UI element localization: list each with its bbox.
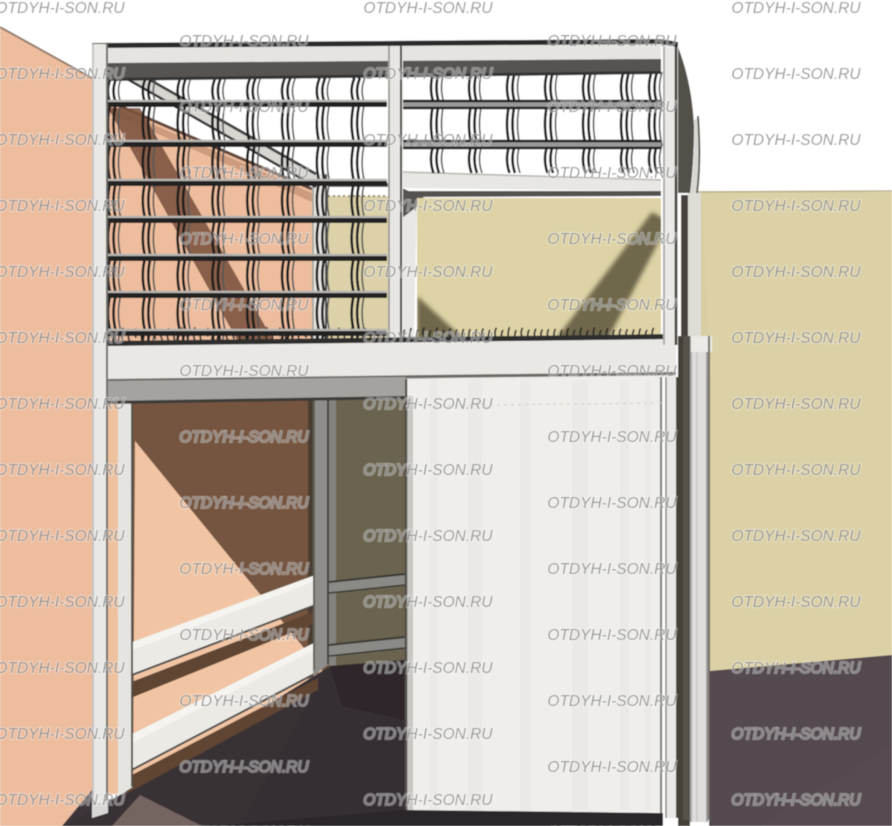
svg-text:OTDYH-I-SON.RU: OTDYH-I-SON.RU: [731, 660, 861, 677]
svg-text:OTDYH-I-SON.RU: OTDYH-I-SON.RU: [363, 198, 493, 215]
svg-text:OTDYH-I-SON.RU: OTDYH-I-SON.RU: [731, 198, 861, 215]
svg-text:OTDYH-I-SON.RU: OTDYH-I-SON.RU: [0, 132, 125, 149]
svg-text:OTDYH-I-SON.RU: OTDYH-I-SON.RU: [363, 264, 493, 281]
svg-text:OTDYH-I-SON.RU: OTDYH-I-SON.RU: [363, 330, 493, 347]
svg-text:OTDYH-I-SON.RU: OTDYH-I-SON.RU: [547, 297, 677, 314]
svg-text:OTDYH-I-SON.RU: OTDYH-I-SON.RU: [0, 660, 125, 677]
svg-text:OTDYH-I-SON.RU: OTDYH-I-SON.RU: [547, 627, 677, 644]
svg-text:OTDYH-I-SON.RU: OTDYH-I-SON.RU: [363, 462, 493, 479]
svg-text:OTDYH-I-SON.RU: OTDYH-I-SON.RU: [547, 693, 677, 710]
svg-text:OTDYH-I-SON.RU: OTDYH-I-SON.RU: [363, 132, 493, 149]
svg-text:OTDYH-I-SON.RU: OTDYH-I-SON.RU: [731, 792, 861, 809]
svg-text:OTDYH-I-SON.RU: OTDYH-I-SON.RU: [179, 231, 309, 248]
svg-text:OTDYH-I-SON.RU: OTDYH-I-SON.RU: [0, 66, 125, 83]
svg-text:OTDYH-I-SON.RU: OTDYH-I-SON.RU: [0, 462, 125, 479]
svg-text:OTDYH-I-SON.RU: OTDYH-I-SON.RU: [363, 792, 493, 809]
svg-text:OTDYH-I-SON.RU: OTDYH-I-SON.RU: [731, 462, 861, 479]
svg-text:OTDYH-I-SON.RU: OTDYH-I-SON.RU: [363, 528, 493, 545]
svg-text:OTDYH-I-SON.RU: OTDYH-I-SON.RU: [547, 33, 677, 50]
svg-text:OTDYH-I-SON.RU: OTDYH-I-SON.RU: [363, 396, 493, 413]
svg-text:OTDYH-I-SON.RU: OTDYH-I-SON.RU: [0, 792, 125, 809]
svg-text:OTDYH-I-SON.RU: OTDYH-I-SON.RU: [0, 198, 125, 215]
svg-text:OTDYH-I-SON.RU: OTDYH-I-SON.RU: [547, 495, 677, 512]
svg-text:OTDYH-I-SON.RU: OTDYH-I-SON.RU: [547, 561, 677, 578]
svg-text:OTDYH-I-SON.RU: OTDYH-I-SON.RU: [363, 660, 493, 677]
svg-text:OTDYH-I-SON.RU: OTDYH-I-SON.RU: [731, 132, 861, 149]
svg-text:OTDYH-I-SON.RU: OTDYH-I-SON.RU: [0, 264, 125, 281]
svg-text:OTDYH-I-SON.RU: OTDYH-I-SON.RU: [0, 396, 125, 413]
svg-text:OTDYH-I-SON.RU: OTDYH-I-SON.RU: [731, 330, 861, 347]
svg-text:OTDYH-I-SON.RU: OTDYH-I-SON.RU: [179, 429, 309, 446]
svg-text:OTDYH-I-SON.RU: OTDYH-I-SON.RU: [731, 396, 861, 413]
svg-text:OTDYH-I-SON.RU: OTDYH-I-SON.RU: [179, 627, 309, 644]
svg-text:OTDYH-I-SON.RU: OTDYH-I-SON.RU: [179, 99, 309, 116]
svg-text:OTDYH-I-SON.RU: OTDYH-I-SON.RU: [179, 297, 309, 314]
svg-text:OTDYH-I-SON.RU: OTDYH-I-SON.RU: [731, 66, 861, 83]
svg-text:OTDYH-I-SON.RU: OTDYH-I-SON.RU: [547, 759, 677, 776]
svg-text:OTDYH-I-SON.RU: OTDYH-I-SON.RU: [731, 594, 861, 611]
svg-text:OTDYH-I-SON.RU: OTDYH-I-SON.RU: [731, 0, 861, 17]
svg-text:OTDYH-I-SON.RU: OTDYH-I-SON.RU: [179, 33, 309, 50]
svg-text:OTDYH-I-SON.RU: OTDYH-I-SON.RU: [0, 594, 125, 611]
svg-text:OTDYH-I-SON.RU: OTDYH-I-SON.RU: [0, 330, 125, 347]
svg-text:OTDYH-I-SON.RU: OTDYH-I-SON.RU: [547, 231, 677, 248]
svg-text:OTDYH-I-SON.RU: OTDYH-I-SON.RU: [363, 0, 493, 17]
svg-text:OTDYH-I-SON.RU: OTDYH-I-SON.RU: [179, 693, 309, 710]
svg-text:OTDYH-I-SON.RU: OTDYH-I-SON.RU: [547, 429, 677, 446]
svg-text:OTDYH-I-SON.RU: OTDYH-I-SON.RU: [179, 363, 309, 380]
svg-text:OTDYH-I-SON.RU: OTDYH-I-SON.RU: [547, 363, 677, 380]
svg-text:OTDYH-I-SON.RU: OTDYH-I-SON.RU: [731, 264, 861, 281]
svg-text:OTDYH-I-SON.RU: OTDYH-I-SON.RU: [0, 726, 125, 743]
svg-text:OTDYH-I-SON.RU: OTDYH-I-SON.RU: [547, 99, 677, 116]
svg-text:OTDYH-I-SON.RU: OTDYH-I-SON.RU: [179, 561, 309, 578]
svg-text:OTDYH-I-SON.RU: OTDYH-I-SON.RU: [179, 165, 309, 182]
svg-text:OTDYH-I-SON.RU: OTDYH-I-SON.RU: [179, 759, 309, 776]
svg-text:OTDYH-I-SON.RU: OTDYH-I-SON.RU: [731, 528, 861, 545]
svg-text:OTDYH-I-SON.RU: OTDYH-I-SON.RU: [179, 495, 309, 512]
svg-text:OTDYH-I-SON.RU: OTDYH-I-SON.RU: [363, 594, 493, 611]
svg-text:OTDYH-I-SON.RU: OTDYH-I-SON.RU: [547, 165, 677, 182]
svg-text:OTDYH-I-SON.RU: OTDYH-I-SON.RU: [0, 528, 125, 545]
svg-text:OTDYH-I-SON.RU: OTDYH-I-SON.RU: [0, 0, 125, 17]
svg-text:OTDYH-I-SON.RU: OTDYH-I-SON.RU: [363, 66, 493, 83]
svg-text:OTDYH-I-SON.RU: OTDYH-I-SON.RU: [363, 726, 493, 743]
svg-text:OTDYH-I-SON.RU: OTDYH-I-SON.RU: [731, 726, 861, 743]
